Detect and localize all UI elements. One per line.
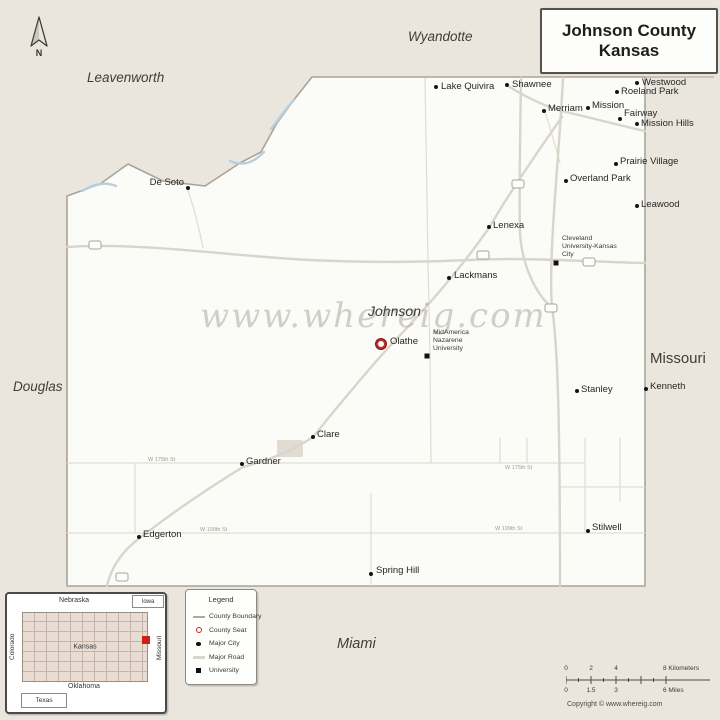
seat-dot-icon bbox=[192, 627, 205, 633]
university-marker bbox=[554, 261, 559, 266]
scale-value: 4 bbox=[614, 665, 618, 672]
city-marker bbox=[564, 179, 568, 183]
inset-kansas-counties: Kansas bbox=[22, 612, 148, 682]
inset-label-iowa: Iowa bbox=[132, 595, 164, 608]
legend-item: University bbox=[186, 664, 256, 678]
scale-value: 0 bbox=[564, 665, 568, 672]
inset-label-oklahoma: Oklahoma bbox=[22, 683, 146, 690]
city-label: De Soto bbox=[150, 177, 184, 188]
scale-value: 1.5 bbox=[586, 687, 595, 694]
city-label: Stanley bbox=[581, 384, 613, 395]
city-marker bbox=[618, 117, 622, 121]
legend-title: Legend bbox=[186, 595, 256, 604]
city-label: Merriam bbox=[548, 103, 583, 114]
city-label: Cleveland University-Kansas City bbox=[562, 235, 617, 259]
region-label-missouri: Missouri bbox=[650, 350, 706, 367]
copyright-text: Copyright © www.whereig.com bbox=[567, 701, 662, 708]
region-label-johnson: Johnson bbox=[368, 303, 421, 319]
legend-item: County Boundary bbox=[186, 610, 256, 624]
legend-item-label: Major Road bbox=[209, 654, 244, 661]
scale-value: 6 Miles bbox=[663, 687, 684, 694]
city-marker bbox=[586, 529, 590, 533]
city-label: Prairie Village bbox=[620, 156, 678, 167]
city-marker bbox=[586, 106, 590, 110]
inset-label-texas: Texas bbox=[21, 693, 67, 708]
city-marker bbox=[644, 387, 648, 391]
legend-item-label: County Boundary bbox=[209, 613, 262, 620]
boundary-line-icon bbox=[192, 616, 205, 618]
city-label: Clare bbox=[317, 429, 340, 440]
road-line-icon bbox=[192, 656, 205, 659]
scale-ticks bbox=[566, 674, 716, 686]
legend-item-label: University bbox=[209, 667, 239, 674]
inset-label-missouri: Missouri bbox=[156, 622, 163, 674]
city-label: Olathe bbox=[390, 336, 418, 347]
scale-km-labels: 0248 Kilometers bbox=[566, 665, 716, 673]
inset-label-kansas: Kansas bbox=[71, 644, 98, 651]
city-marker bbox=[434, 85, 438, 89]
city-marker bbox=[447, 276, 451, 280]
city-label: Mission Hills bbox=[641, 118, 694, 129]
road-label: W 199th St bbox=[495, 526, 522, 532]
city-label: Roeland Park bbox=[621, 86, 679, 97]
road-label: W 175th St bbox=[148, 457, 175, 463]
region-label-leavenworth: Leavenworth bbox=[87, 70, 164, 85]
scale-mi-labels: 01.536 Miles bbox=[566, 687, 716, 695]
scale-bar: 0248 Kilometers 01.536 Miles bbox=[566, 665, 716, 701]
city-label: Leawood bbox=[641, 199, 680, 210]
scale-value: 3 bbox=[614, 687, 618, 694]
city-label: Stilwell bbox=[592, 522, 622, 533]
city-label: Overland Park bbox=[570, 173, 631, 184]
legend-item-label: County Seat bbox=[209, 627, 246, 634]
scale-value: 8 Kilometers bbox=[663, 665, 699, 672]
region-label-wyandotte: Wyandotte bbox=[408, 29, 473, 44]
city-label: Kenneth bbox=[650, 381, 685, 392]
map-page: { "title": {"line1": "Johnson County", "… bbox=[0, 0, 720, 720]
city-label: Lenexa bbox=[493, 220, 524, 231]
city-label: Spring Hill bbox=[376, 565, 419, 576]
city-label: Mission bbox=[592, 100, 624, 111]
univ-square-icon bbox=[192, 668, 205, 673]
legend-items: County BoundaryCounty SeatMajor CityMajo… bbox=[186, 610, 256, 678]
city-label: Shawnee bbox=[512, 79, 552, 90]
legend-item: Major City bbox=[186, 637, 256, 651]
city-marker bbox=[635, 122, 639, 126]
city-marker bbox=[240, 462, 244, 466]
city-dot-icon bbox=[192, 642, 205, 647]
city-marker bbox=[635, 81, 639, 85]
scale-value: 0 bbox=[564, 687, 568, 694]
inset-label-colorado: Colorado bbox=[9, 622, 16, 672]
city-label: Gardner bbox=[246, 456, 281, 467]
legend-item: County Seat bbox=[186, 624, 256, 638]
inset-label-nebraska: Nebraska bbox=[7, 597, 141, 604]
road-label: W 175th St bbox=[505, 465, 532, 471]
university-marker bbox=[425, 354, 430, 359]
inset-johnson-county-highlight bbox=[142, 636, 150, 644]
county-seat-marker bbox=[376, 339, 386, 349]
city-label: Lake Quivira bbox=[441, 81, 494, 92]
legend-item: Major Road bbox=[186, 651, 256, 665]
city-label: Lackmans bbox=[454, 270, 497, 281]
legend: Legend County BoundaryCounty SeatMajor C… bbox=[185, 589, 257, 685]
city-marker bbox=[505, 83, 509, 87]
region-label-douglas: Douglas bbox=[13, 379, 63, 394]
city-marker bbox=[635, 204, 639, 208]
state-locator-inset: Nebraska Iowa Colorado Kansas Missouri O… bbox=[5, 592, 167, 714]
region-label-miami: Miami bbox=[337, 636, 376, 652]
city-marker bbox=[575, 389, 579, 393]
city-marker bbox=[137, 535, 141, 539]
legend-item-label: Major City bbox=[209, 640, 240, 647]
city-label: Edgerton bbox=[143, 529, 182, 540]
city-marker bbox=[186, 186, 190, 190]
city-marker bbox=[311, 435, 315, 439]
road-label: W 199th St bbox=[200, 527, 227, 533]
city-label: MidAmerica Nazarene University bbox=[433, 329, 469, 353]
city-marker bbox=[615, 90, 619, 94]
city-marker bbox=[614, 162, 618, 166]
city-marker bbox=[487, 225, 491, 229]
city-marker bbox=[369, 572, 373, 576]
scale-value: 2 bbox=[589, 665, 593, 672]
city-marker bbox=[542, 109, 546, 113]
